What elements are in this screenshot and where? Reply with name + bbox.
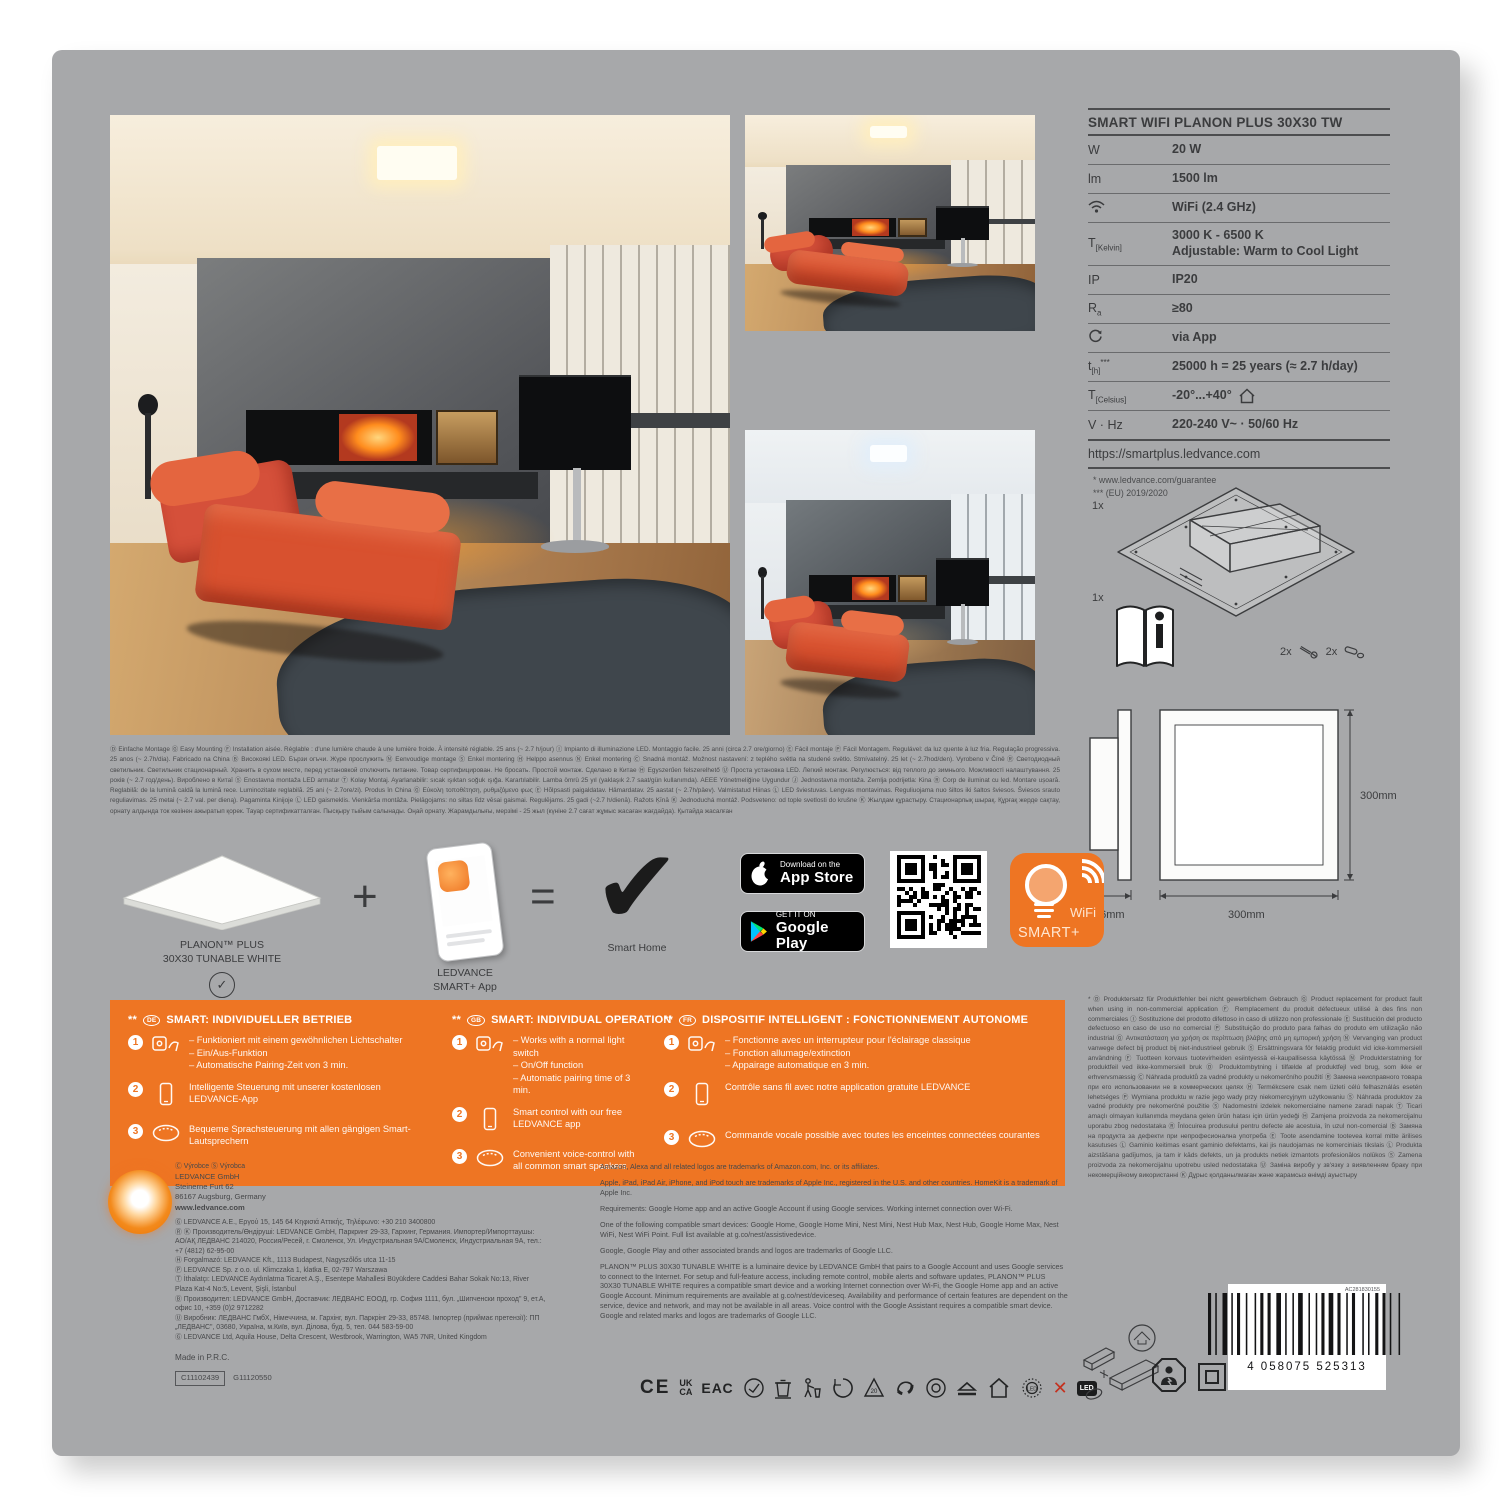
led-sun-icon: LED — [1020, 1376, 1044, 1400]
house-icon — [1238, 388, 1256, 404]
ukca-mark: UKCA — [679, 1379, 692, 1397]
product-photo-small-cool — [745, 430, 1035, 735]
recycle-mobius-icon — [832, 1377, 854, 1399]
spec-row-kelvin: T[Kelvin] 3000 K - 6500 KAdjustable: War… — [1088, 223, 1390, 266]
plus-sign: + — [352, 872, 378, 922]
manual-icon — [1114, 602, 1176, 674]
svg-text:LED: LED — [1027, 1387, 1037, 1393]
light-switch-hand-icon — [476, 1035, 504, 1055]
pap-triangle-icon: 20 — [863, 1377, 885, 1399]
light-switch-hand-icon — [688, 1035, 716, 1055]
green-dot-icon — [894, 1377, 916, 1399]
multilingual-mounting-text: Ⓓ Einfache Montage Ⓖ Easy Mounting Ⓕ Ins… — [110, 745, 1060, 817]
flat-surface-icon — [956, 1380, 978, 1396]
app-store-badge: Download on the App Store — [740, 853, 865, 894]
features-column-de: **DESMART: INDIVIDUELLER BETRIEB 1 – Fun… — [128, 1014, 426, 1172]
smart-speaker-icon — [688, 1130, 716, 1148]
wall-plug-icon — [1343, 645, 1365, 659]
google-play-icon — [750, 920, 768, 943]
manual-quantity: 1x — [1092, 592, 1104, 604]
panel-quantity: 1x — [1092, 500, 1104, 512]
qr-code — [890, 851, 987, 948]
smart-features-box: **DESMART: INDIVIDUELLER BETRIEB 1 – Fun… — [110, 1000, 1065, 1186]
production-code-boxed: C11102439 — [175, 1371, 225, 1385]
product-url: https://smartplus.ledvance.com — [1088, 441, 1390, 469]
spec-row-dimmable: via App — [1088, 324, 1390, 353]
certification-marks-row: CE UKCA ЕАС 20 LED ✕ LED — [640, 1376, 1097, 1400]
smart-home-figure: ✔ Smart Home — [572, 836, 702, 956]
eac-mark: ЕАС — [701, 1380, 733, 1396]
dimension-drawing: 56mm 300mm 300mm — [1082, 700, 1426, 928]
spec-row-wifi: WiFi (2.4 GHz) — [1088, 194, 1390, 223]
svg-text:300mm: 300mm — [1360, 790, 1397, 802]
compatible-check-icon: ✓ — [209, 972, 235, 998]
dimmable-icon — [1088, 329, 1103, 344]
ean-barcode: AC281830155 4 058075 525313 — [1228, 1284, 1386, 1390]
product-photo-main-warm — [110, 115, 730, 735]
smartphone-icon — [159, 1082, 173, 1106]
lang-badge-gb: GB — [467, 1015, 485, 1026]
light-switch-hand-icon — [152, 1035, 180, 1055]
leaf-check-icon — [743, 1377, 765, 1399]
product-photo-small-warm — [745, 115, 1035, 331]
spec-table: SMART WIFI PLANON PLUS 30X30 TW W 20 W l… — [1088, 108, 1390, 469]
plugs-quantity: 2x — [1326, 646, 1338, 658]
electrician-required-icon — [1152, 1358, 1186, 1392]
google-play-badge: GET IT ON Google Play — [740, 911, 865, 952]
smartphone-icon — [695, 1082, 709, 1106]
weee-bin-icon — [774, 1377, 792, 1399]
equals-sign: = — [530, 872, 556, 922]
features-column-fr: **FRDISPOSITIF INTELLIGENT : FONCTIONNEM… — [664, 1014, 1047, 1172]
made-in-label: Made in P.R.C. — [175, 1352, 547, 1363]
circled-symbol-icon — [925, 1377, 947, 1399]
ledvance-brand-dot-logo — [108, 1170, 172, 1234]
screw-icon — [1298, 645, 1320, 659]
planon-panel-figure: PLANON™ PLUS 30X30 TUNABLE WHITE ✓ — [116, 850, 328, 998]
spec-row-wattage: W 20 W — [1088, 136, 1390, 165]
wifi-icon — [1088, 200, 1105, 213]
barcode-number: 4 058075 525313 — [1247, 1361, 1367, 1373]
spec-row-voltage: V · Hz 220-240 V~ · 50/60 Hz — [1088, 411, 1390, 441]
spec-row-lifetime: t[h]*** 25000 h = 25 years (≈ 2.7 h/day) — [1088, 353, 1390, 382]
ce-mark: CE — [640, 1377, 670, 1399]
wifi-smartplus-logo: WiFi SMART+ — [1010, 853, 1104, 947]
smart-speaker-icon — [152, 1124, 180, 1142]
spec-row-temperature: T[Celsius] -20°...+40° — [1088, 382, 1390, 411]
ledvance-url: www.ledvance.com — [175, 1203, 547, 1213]
screws-quantity: 2x — [1280, 646, 1292, 658]
protection-class-2-icon — [1198, 1363, 1226, 1391]
svg-text:20: 20 — [870, 1389, 877, 1395]
spec-row-lumen: lm 1500 lm — [1088, 165, 1390, 194]
smartphone-icon — [483, 1107, 497, 1131]
lang-badge-fr: FR — [679, 1015, 696, 1026]
svg-text:300mm: 300mm — [1228, 909, 1265, 921]
panel-isometric-drawing — [1110, 480, 1362, 622]
spec-row-cri: Ra ≥80 — [1088, 295, 1390, 324]
trademark-text-block: Amazon, Alexa and all related logos are … — [600, 1162, 1068, 1327]
features-column-gb: **GBSMART: INDIVIDUAL OPERATION 1 – Work… — [452, 1014, 638, 1172]
indoor-house-icon — [987, 1377, 1011, 1399]
lang-badge-de: DE — [143, 1015, 160, 1026]
spec-row-ip: IP IP20 — [1088, 266, 1390, 295]
product-title: SMART WIFI PLANON PLUS 30X30 TW — [1088, 108, 1390, 136]
fixings-row: 2x 2x — [1280, 645, 1365, 659]
person-litter-icon — [801, 1377, 823, 1399]
manufacturer-address-block: Ⓒ Výrobce Ⓢ Výrobca LEDVANCE GmbH Steine… — [175, 1162, 547, 1386]
smart-home-check-icon: ✔ — [572, 836, 702, 940]
smartphone-illustration — [425, 841, 504, 962]
guarantee-multilingual-text: * Ⓓ Produktersatz für Produktfehler bei … — [1088, 995, 1422, 1180]
apple-icon — [750, 861, 772, 887]
production-code: G11120550 — [233, 1373, 272, 1383]
packaging-back-panel: SMART WIFI PLANON PLUS 30X30 TW W 20 W l… — [52, 50, 1460, 1456]
not-suitable-cross-icon: ✕ — [1053, 1378, 1068, 1399]
